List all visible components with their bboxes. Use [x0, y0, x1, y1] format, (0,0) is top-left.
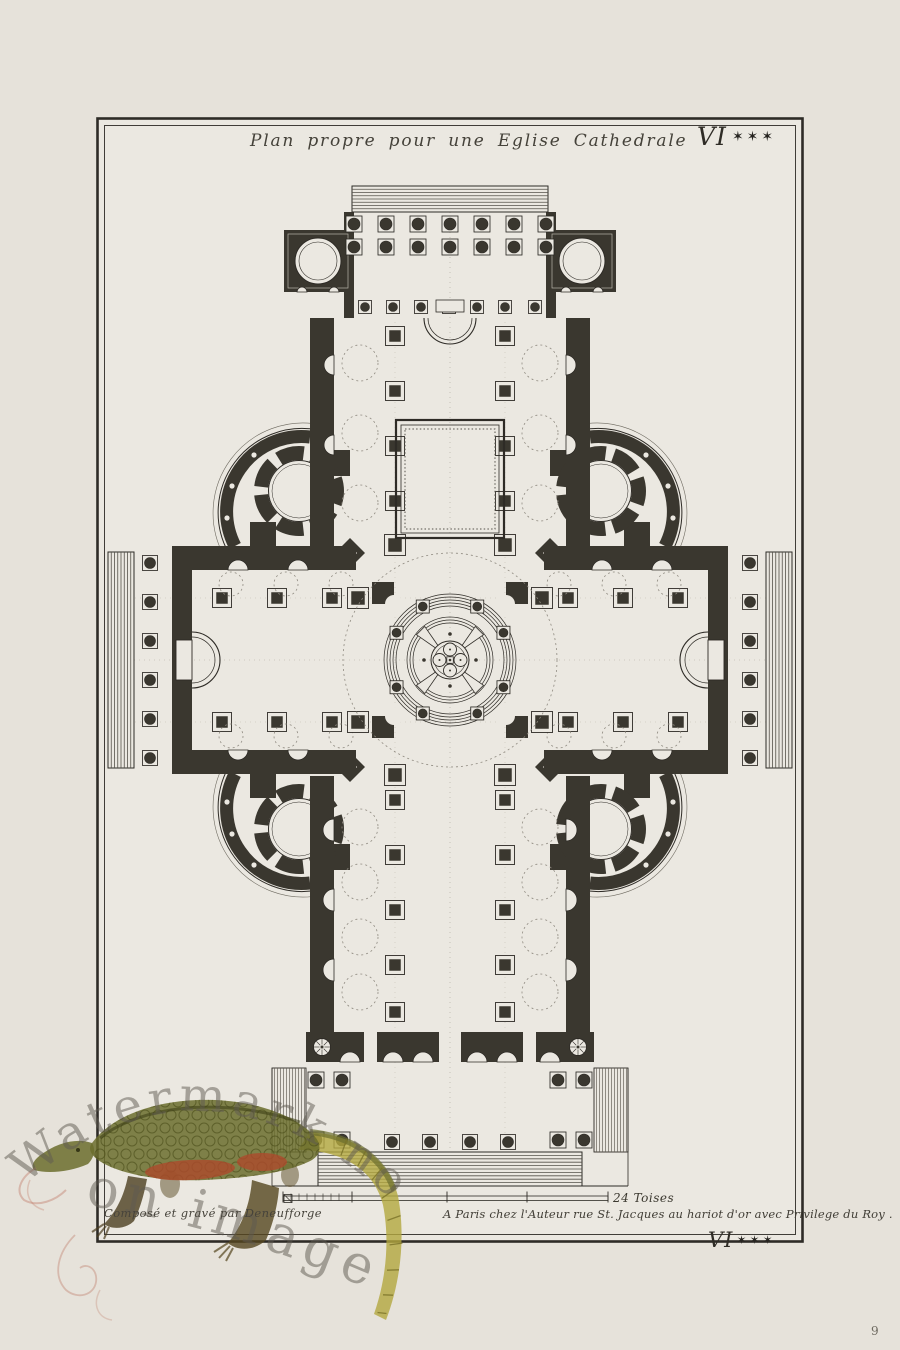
- plate-number-top: VI✶✶✶: [697, 122, 776, 151]
- cathedral-floor-plan: Watermark not on image: [0, 0, 900, 1350]
- publisher-imprint: A Paris chez l'Auteur rue St. Jacques au…: [443, 1207, 893, 1221]
- plate-title: Plan propre pour une Eglise Cathedrale: [250, 131, 650, 151]
- plate-number-bottom: VI✶✶✶: [708, 1228, 776, 1252]
- engraver-credit: Composé et gravé par Deneufforge: [104, 1206, 322, 1220]
- plate-stars-icon: ✶✶✶: [736, 1233, 775, 1247]
- plate-numeral: VI: [697, 122, 727, 151]
- scale-bar-label: 24 Toises: [613, 1191, 674, 1205]
- plate-stars-icon: ✶✶✶: [732, 129, 776, 145]
- plate-numeral: VI: [708, 1228, 733, 1252]
- page-number: 9: [871, 1324, 879, 1338]
- engraving-page: Watermark not on image Plan propre pour …: [0, 0, 900, 1350]
